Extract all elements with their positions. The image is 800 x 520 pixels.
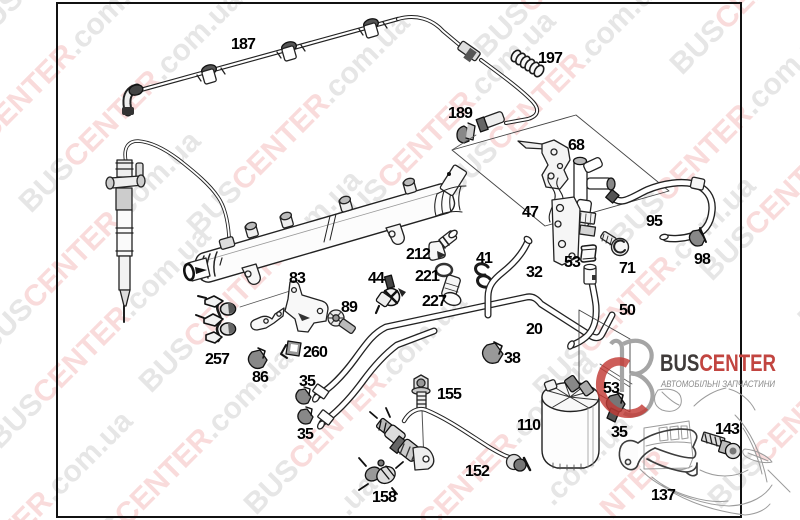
svg-text:50: 50 (619, 302, 636, 319)
svg-text:35: 35 (297, 426, 314, 443)
svg-text:35: 35 (611, 424, 628, 441)
svg-text:44: 44 (368, 270, 385, 287)
svg-text:227: 227 (422, 293, 447, 310)
svg-text:155: 155 (437, 386, 462, 403)
svg-text:53: 53 (603, 380, 620, 397)
svg-text:89: 89 (341, 299, 358, 316)
svg-text:41: 41 (476, 250, 493, 267)
svg-text:38: 38 (504, 350, 521, 367)
svg-text:АВТОМОБІЛЬНІ ЗАПЧАСТИНИ: АВТОМОБІЛЬНІ ЗАПЧАСТИНИ (660, 379, 775, 390)
svg-text:221: 221 (415, 268, 440, 285)
svg-text:68: 68 (568, 137, 585, 154)
svg-text:98: 98 (694, 251, 711, 268)
svg-text:32: 32 (526, 264, 543, 281)
svg-text:53: 53 (564, 254, 581, 271)
svg-text:35: 35 (299, 373, 316, 390)
svg-text:189: 189 (448, 105, 473, 122)
svg-text:20: 20 (526, 321, 543, 338)
svg-text:257: 257 (205, 351, 230, 368)
svg-text:110: 110 (517, 417, 541, 434)
svg-text:212: 212 (406, 246, 431, 263)
svg-text:BUSCENTER: BUSCENTER (660, 350, 776, 377)
svg-text:137: 137 (651, 487, 676, 504)
svg-text:83: 83 (289, 270, 306, 287)
svg-text:47: 47 (522, 204, 539, 221)
svg-text:86: 86 (252, 369, 269, 386)
svg-text:71: 71 (619, 260, 636, 277)
svg-text:260: 260 (303, 344, 328, 361)
svg-text:158: 158 (372, 489, 397, 506)
svg-text:95: 95 (646, 213, 663, 230)
svg-text:143: 143 (715, 421, 740, 438)
svg-text:152: 152 (465, 463, 490, 480)
svg-text:197: 197 (538, 50, 563, 67)
svg-text:187: 187 (231, 36, 256, 53)
